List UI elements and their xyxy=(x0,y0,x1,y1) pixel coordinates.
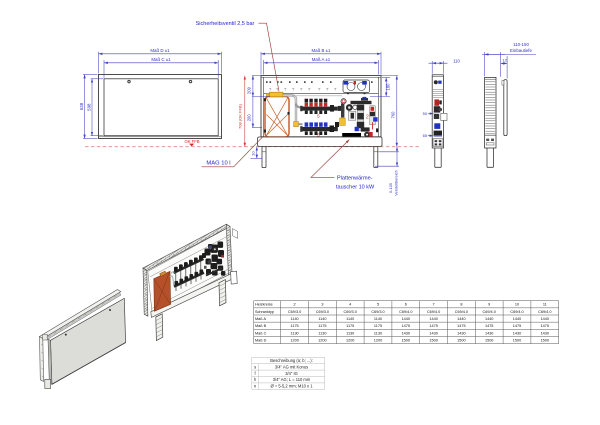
svg-text:1130: 1130 xyxy=(374,331,382,335)
svg-text:Verstellbereich: Verstellbereich xyxy=(394,170,399,196)
svg-text:1200: 1200 xyxy=(346,338,354,342)
svg-text:1430: 1430 xyxy=(402,331,410,335)
svg-text:5: 5 xyxy=(377,303,379,307)
svg-text:2: 2 xyxy=(366,115,369,121)
svg-text:Maß B: Maß B xyxy=(255,324,267,328)
svg-text:708 (OK FFB): 708 (OK FFB) xyxy=(237,103,242,129)
svg-text:C69/4.0: C69/4.0 xyxy=(538,310,551,314)
svg-text:1430: 1430 xyxy=(457,331,465,335)
svg-text:Einbautiefe: Einbautiefe xyxy=(510,48,533,53)
svg-text:C69/4.0: C69/4.0 xyxy=(455,310,468,314)
svg-text:180: 180 xyxy=(386,83,391,91)
svg-text:3/4" AG; L = 110 mm: 3/4" AG; L = 110 mm xyxy=(273,377,311,382)
svg-text:1475: 1475 xyxy=(513,324,521,328)
svg-text:1175: 1175 xyxy=(374,324,382,328)
svg-text:Schranktyp: Schranktyp xyxy=(255,310,274,314)
svg-text:65: 65 xyxy=(423,133,427,138)
svg-text:Plattenwärme-: Plattenwärme- xyxy=(337,176,373,182)
svg-text:1130: 1130 xyxy=(318,331,326,335)
svg-text:1130: 1130 xyxy=(346,331,354,335)
svg-text:1500: 1500 xyxy=(541,338,549,342)
svg-text:Maß D: Maß D xyxy=(255,338,267,342)
svg-text:3: 3 xyxy=(321,303,323,307)
svg-text:1175: 1175 xyxy=(291,324,299,328)
svg-text:638: 638 xyxy=(79,102,84,110)
svg-text:1430: 1430 xyxy=(541,331,549,335)
svg-text:10: 10 xyxy=(515,303,519,307)
svg-text:Maß C ±1: Maß C ±1 xyxy=(151,57,171,62)
svg-text:C69/4.0: C69/4.0 xyxy=(510,310,523,314)
svg-text:Maß A ±1: Maß A ±1 xyxy=(312,57,331,62)
svg-text:110: 110 xyxy=(453,58,460,63)
svg-text:1200: 1200 xyxy=(290,338,298,342)
svg-text:Maß A: Maß A xyxy=(255,317,266,321)
svg-text:6: 6 xyxy=(405,303,407,307)
svg-text:C69/4.0: C69/4.0 xyxy=(483,310,496,314)
svg-text:9: 9 xyxy=(488,303,490,307)
svg-text:C69/3.0: C69/3.0 xyxy=(288,310,301,314)
svg-text:11: 11 xyxy=(543,303,547,307)
svg-text:110-150: 110-150 xyxy=(513,42,529,47)
svg-text:Beschreibung (a; b; ...):: Beschreibung (a; b; ...): xyxy=(270,358,313,363)
svg-text:1440: 1440 xyxy=(541,317,549,321)
svg-text:1500: 1500 xyxy=(513,338,521,342)
svg-text:1430: 1430 xyxy=(429,331,437,335)
svg-text:209: 209 xyxy=(246,86,251,94)
svg-text:1475: 1475 xyxy=(485,324,493,328)
svg-text:1475: 1475 xyxy=(429,324,437,328)
svg-text:1500: 1500 xyxy=(485,338,493,342)
svg-text:12: 12 xyxy=(502,57,507,62)
svg-text:7: 7 xyxy=(433,303,435,307)
svg-text:200: 200 xyxy=(246,114,251,122)
svg-text:2: 2 xyxy=(294,303,296,307)
svg-text:Maß B ±1: Maß B ±1 xyxy=(311,48,331,53)
svg-text:8: 8 xyxy=(460,303,462,307)
svg-text:C69/4.0: C69/4.0 xyxy=(399,310,412,314)
svg-text:1130: 1130 xyxy=(291,331,299,335)
svg-text:1175: 1175 xyxy=(318,324,326,328)
svg-text:1200: 1200 xyxy=(374,338,382,342)
svg-text:MAG 10 l: MAG 10 l xyxy=(206,161,230,167)
svg-text:1200: 1200 xyxy=(318,338,326,342)
svg-text:1440: 1440 xyxy=(485,317,493,321)
svg-text:3/4" IG: 3/4" IG xyxy=(285,371,298,376)
svg-text:1140: 1140 xyxy=(346,317,354,321)
svg-text:Heizkreise: Heizkreise xyxy=(255,303,273,307)
svg-text:1475: 1475 xyxy=(541,324,549,328)
svg-text:C69/4.0: C69/4.0 xyxy=(427,310,440,314)
svg-text:1140: 1140 xyxy=(374,317,382,321)
svg-text:4: 4 xyxy=(349,303,351,307)
svg-text:1440: 1440 xyxy=(402,317,410,321)
svg-text:Ø = 5-5,2 mm; M10 x 1: Ø = 5-5,2 mm; M10 x 1 xyxy=(271,384,314,389)
svg-text:1140: 1140 xyxy=(318,317,326,321)
svg-text:1500: 1500 xyxy=(429,338,437,342)
svg-text:3/4" AG mit Konus: 3/4" AG mit Konus xyxy=(275,364,308,369)
svg-text:1440: 1440 xyxy=(457,317,465,321)
svg-text:1430: 1430 xyxy=(485,331,493,335)
svg-text:s: s xyxy=(254,364,256,369)
svg-text:1430: 1430 xyxy=(513,331,521,335)
svg-text:Sicherheitsventil 2,5 bar: Sicherheitsventil 2,5 bar xyxy=(196,21,255,27)
svg-text:1475: 1475 xyxy=(402,324,410,328)
svg-text:Maß C: Maß C xyxy=(255,331,267,335)
svg-text:1440: 1440 xyxy=(429,317,437,321)
svg-text:5: 5 xyxy=(317,114,320,119)
svg-text:OK FFB: OK FFB xyxy=(184,139,199,144)
svg-text:Maß D ±1: Maß D ±1 xyxy=(150,48,170,53)
svg-text:tauscher 10 kW: tauscher 10 kW xyxy=(336,185,375,191)
svg-text:760: 760 xyxy=(391,111,396,119)
svg-text:1175: 1175 xyxy=(346,324,354,328)
svg-text:C69/3.0: C69/3.0 xyxy=(344,310,357,314)
svg-text:1500: 1500 xyxy=(402,338,410,342)
svg-text:1475: 1475 xyxy=(457,324,465,328)
svg-text:598: 598 xyxy=(87,103,92,111)
svg-text:0-135: 0-135 xyxy=(388,183,393,193)
svg-text:1140: 1140 xyxy=(291,317,299,321)
svg-text:C69/3.0: C69/3.0 xyxy=(371,310,384,314)
svg-text:1500: 1500 xyxy=(457,338,465,342)
svg-text:10: 10 xyxy=(250,151,255,156)
svg-text:C69/3.0: C69/3.0 xyxy=(316,310,329,314)
svg-text:1440: 1440 xyxy=(513,317,521,321)
